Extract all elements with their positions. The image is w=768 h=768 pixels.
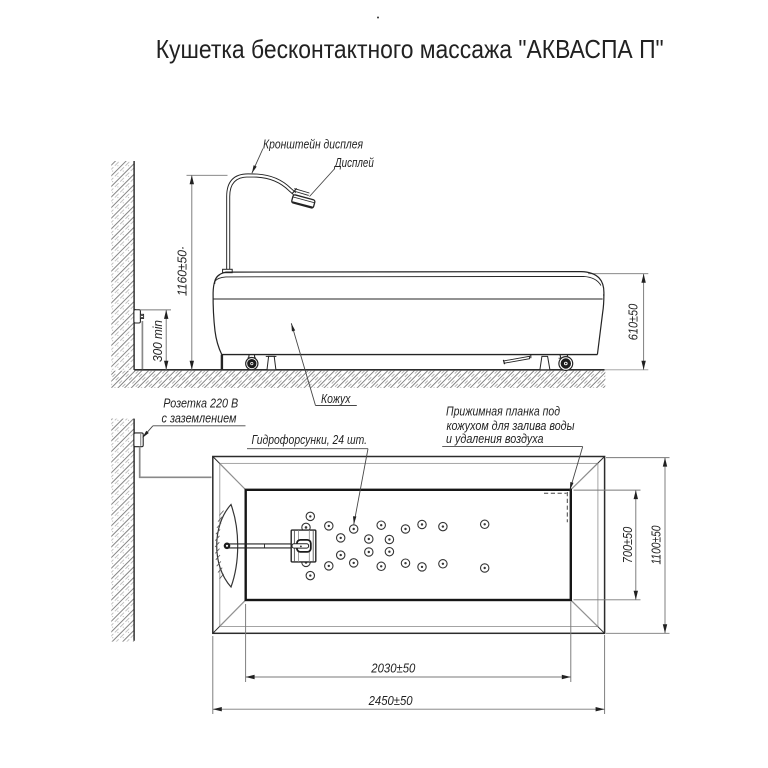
svg-text:1100±50: 1100±50 [648, 525, 663, 565]
svg-text:610±50: 610±50 [626, 303, 641, 340]
svg-text:Розетка 220 В: Розетка 220 В [163, 395, 238, 410]
svg-text:Гидрофорсунки, 24 шт.: Гидрофорсунки, 24 шт. [252, 432, 368, 447]
svg-text:700±50: 700±50 [620, 526, 635, 563]
svg-text:2450±50: 2450±50 [368, 693, 414, 708]
svg-text:Прижимная планка под: Прижимная планка под [446, 403, 560, 418]
svg-text:и удаления воздуха: и удаления воздуха [446, 431, 544, 446]
svg-text:300 min: 300 min [150, 320, 165, 362]
svg-text:2030±50: 2030±50 [370, 660, 416, 675]
svg-text:1160±50·: 1160±50· [175, 246, 190, 296]
svg-text:с заземлением: с заземлением [162, 410, 237, 425]
svg-text:Кожух: Кожух [321, 391, 351, 406]
svg-text:Кушетка бесконтактного массажа: Кушетка бесконтактного массажа "АКВАСПА … [156, 34, 664, 64]
svg-text:Кронштейн дисплея: Кронштейн дисплея [263, 136, 363, 151]
svg-text:Дисплей: Дисплей [333, 155, 374, 170]
